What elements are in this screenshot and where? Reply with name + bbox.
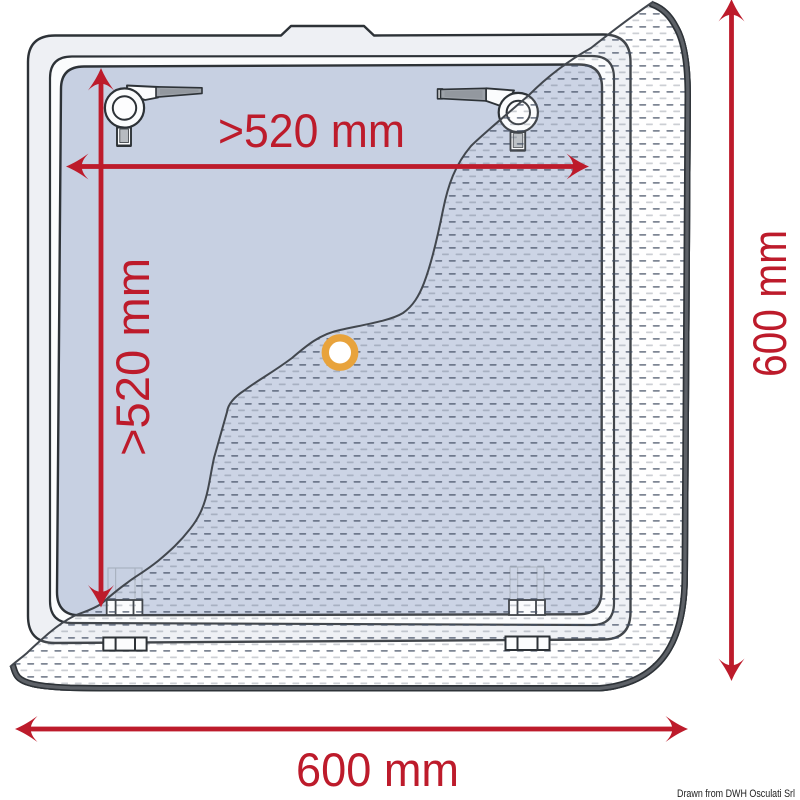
svg-text:>520 mm: >520 mm — [106, 258, 159, 456]
svg-text:600 mm: 600 mm — [296, 743, 459, 796]
svg-text:600 mm: 600 mm — [743, 230, 796, 377]
svg-text:>520 mm: >520 mm — [218, 104, 405, 157]
svg-text:Drawn from DWH Osculati Srl: Drawn from DWH Osculati Srl — [677, 788, 795, 800]
